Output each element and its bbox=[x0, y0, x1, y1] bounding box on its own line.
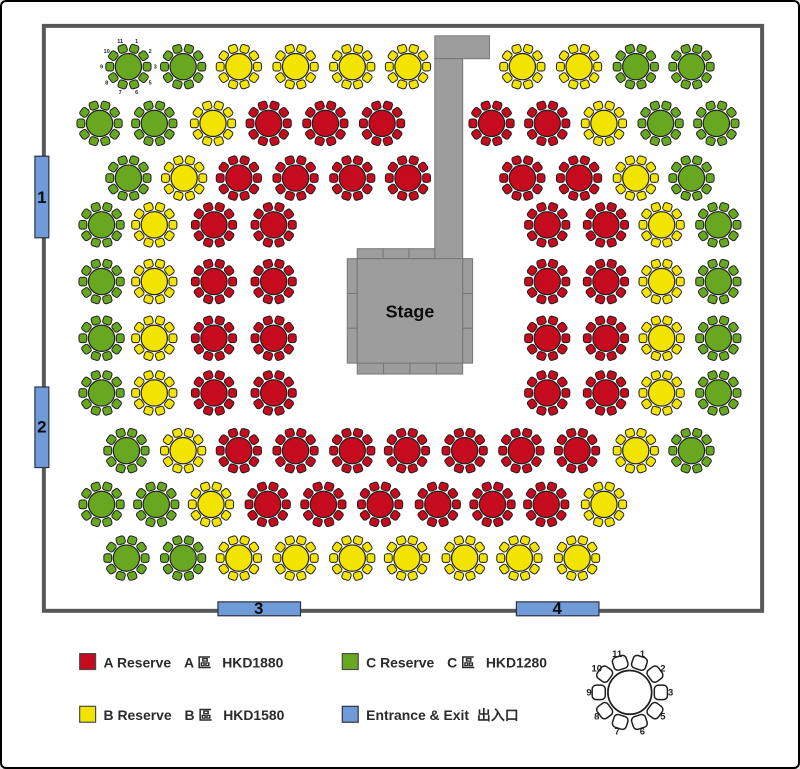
chair bbox=[203, 294, 214, 304]
chair bbox=[581, 500, 589, 509]
table-top bbox=[649, 380, 675, 406]
chair bbox=[625, 79, 636, 89]
chair bbox=[500, 174, 508, 183]
chair bbox=[523, 191, 534, 201]
chair bbox=[301, 500, 309, 509]
chair bbox=[115, 535, 126, 545]
chair bbox=[396, 463, 407, 473]
stage-runway bbox=[435, 36, 490, 260]
table-zone-a bbox=[191, 202, 236, 248]
chair bbox=[102, 406, 113, 416]
table-zone-b bbox=[384, 535, 429, 581]
table-zone-b bbox=[639, 315, 684, 361]
chair bbox=[696, 221, 704, 230]
chair bbox=[493, 482, 504, 492]
table-zone-b bbox=[639, 259, 684, 305]
table-zone-a bbox=[415, 482, 460, 528]
chair bbox=[143, 370, 154, 380]
chair bbox=[129, 191, 140, 201]
table-top bbox=[141, 212, 167, 238]
chair bbox=[239, 155, 250, 165]
chair bbox=[719, 370, 730, 380]
table-top bbox=[593, 325, 619, 351]
chair bbox=[353, 44, 364, 54]
chair bbox=[371, 136, 382, 146]
seat-number: 5 bbox=[660, 712, 665, 723]
chair bbox=[184, 428, 195, 438]
chair bbox=[314, 136, 325, 146]
chair bbox=[407, 428, 418, 438]
chair bbox=[523, 44, 534, 54]
chair bbox=[310, 446, 318, 455]
chair bbox=[214, 351, 225, 361]
chair bbox=[510, 463, 521, 473]
chair bbox=[562, 334, 570, 343]
chair bbox=[268, 482, 279, 492]
chair bbox=[273, 62, 281, 71]
chair bbox=[338, 500, 346, 509]
table-zone-b bbox=[162, 155, 207, 201]
table-zone-c bbox=[161, 44, 206, 90]
table-top bbox=[88, 491, 114, 517]
table-zone-a bbox=[358, 482, 403, 528]
chair bbox=[595, 315, 606, 325]
floor-plan-canvas: Stage 123567891011 1 2 3 4 A ReserveA 區H… bbox=[2, 2, 798, 767]
table-top bbox=[282, 438, 308, 464]
chair bbox=[216, 174, 224, 183]
chair bbox=[190, 119, 198, 128]
chair bbox=[127, 463, 138, 473]
chair bbox=[155, 351, 166, 361]
chair bbox=[341, 79, 352, 89]
chair bbox=[353, 535, 364, 545]
table-zone-a bbox=[301, 482, 346, 528]
chair bbox=[228, 535, 239, 545]
stage-step bbox=[357, 363, 383, 374]
chair bbox=[454, 571, 465, 581]
table-top bbox=[623, 165, 649, 191]
chair bbox=[263, 202, 274, 212]
chair bbox=[312, 482, 323, 492]
chair bbox=[650, 62, 658, 71]
chair bbox=[523, 79, 534, 89]
table-top bbox=[170, 54, 196, 80]
table-top bbox=[282, 165, 308, 191]
chair bbox=[595, 351, 606, 361]
chair bbox=[228, 428, 239, 438]
chair bbox=[537, 62, 545, 71]
chair bbox=[326, 136, 337, 146]
chair bbox=[650, 136, 661, 146]
chair bbox=[129, 44, 140, 54]
chair bbox=[593, 136, 604, 146]
legend-label-b: B ReserveB 區HKD1580 bbox=[104, 707, 285, 723]
chair bbox=[506, 119, 514, 128]
chair bbox=[534, 554, 542, 563]
chair bbox=[173, 191, 184, 201]
chair bbox=[288, 221, 296, 230]
legend-c-name: C Reserve bbox=[366, 655, 434, 671]
legend-a-zone: A 區 bbox=[184, 655, 211, 671]
chair bbox=[422, 446, 430, 455]
table-top bbox=[312, 110, 338, 136]
table-zone-c bbox=[79, 315, 124, 361]
chair bbox=[604, 136, 615, 146]
chair bbox=[172, 463, 183, 473]
chair bbox=[143, 351, 154, 361]
chair bbox=[384, 446, 392, 455]
table-top bbox=[143, 491, 169, 517]
chair bbox=[115, 571, 126, 581]
chair bbox=[535, 517, 546, 527]
chair bbox=[593, 482, 604, 492]
chair bbox=[680, 155, 691, 165]
chair bbox=[694, 119, 702, 128]
chair bbox=[188, 500, 196, 509]
chair bbox=[353, 79, 364, 89]
table-top bbox=[141, 380, 167, 406]
seat-number: 11 bbox=[612, 649, 622, 660]
chair bbox=[548, 237, 559, 247]
table-top bbox=[478, 110, 504, 136]
chair bbox=[296, 535, 307, 545]
chair bbox=[100, 136, 111, 146]
chair bbox=[497, 554, 505, 563]
chair bbox=[145, 517, 156, 527]
chair bbox=[143, 237, 154, 247]
chair bbox=[717, 136, 728, 146]
chair bbox=[625, 44, 636, 54]
chair bbox=[155, 101, 166, 111]
chair bbox=[353, 155, 364, 165]
chair bbox=[525, 119, 533, 128]
chair bbox=[169, 277, 177, 286]
chair bbox=[263, 259, 274, 269]
table-top bbox=[200, 110, 226, 136]
chair bbox=[274, 406, 285, 416]
chair bbox=[239, 571, 250, 581]
table-top bbox=[255, 491, 281, 517]
chair bbox=[522, 428, 533, 438]
table-zone-a bbox=[583, 202, 628, 248]
chair bbox=[719, 406, 730, 416]
chair bbox=[579, 44, 590, 54]
chair bbox=[129, 155, 140, 165]
chair bbox=[228, 79, 239, 89]
table-zone-b bbox=[132, 370, 177, 416]
chair bbox=[172, 535, 183, 545]
chair bbox=[548, 101, 559, 111]
chair bbox=[104, 446, 112, 455]
chair bbox=[396, 571, 407, 581]
table-zone-a bbox=[499, 428, 544, 474]
chair bbox=[90, 294, 101, 304]
chair bbox=[536, 259, 547, 269]
chair bbox=[556, 62, 564, 71]
chair bbox=[172, 79, 183, 89]
chair bbox=[228, 119, 236, 128]
table-zone-a bbox=[251, 202, 296, 248]
chair bbox=[669, 446, 677, 455]
table-zone-c bbox=[134, 482, 179, 528]
chair bbox=[480, 136, 491, 146]
chair bbox=[143, 315, 154, 325]
chair bbox=[581, 119, 589, 128]
chair bbox=[662, 294, 673, 304]
chair bbox=[692, 44, 703, 54]
legend-label-a: A ReserveA 區HKD1880 bbox=[104, 655, 284, 671]
table-zone-a bbox=[360, 101, 405, 147]
chair bbox=[662, 259, 673, 269]
chair bbox=[330, 174, 338, 183]
chair bbox=[284, 79, 295, 89]
table-top bbox=[201, 268, 227, 294]
chair bbox=[185, 191, 196, 201]
chair bbox=[508, 535, 519, 545]
chair bbox=[127, 571, 138, 581]
chair bbox=[360, 119, 368, 128]
chair bbox=[203, 351, 214, 361]
chair bbox=[169, 221, 177, 230]
chair bbox=[654, 685, 667, 699]
chair bbox=[733, 334, 741, 343]
chair bbox=[263, 294, 274, 304]
table-top bbox=[534, 110, 560, 136]
chair bbox=[604, 482, 615, 492]
chair bbox=[169, 119, 177, 128]
chair bbox=[454, 463, 465, 473]
chair bbox=[274, 202, 285, 212]
chair bbox=[155, 370, 166, 380]
stage-step bbox=[347, 328, 357, 363]
chair bbox=[282, 500, 290, 509]
chair bbox=[172, 44, 183, 54]
chair bbox=[102, 351, 113, 361]
table-top bbox=[395, 54, 421, 80]
table-top bbox=[201, 212, 227, 238]
chair bbox=[397, 44, 408, 54]
chair bbox=[636, 191, 647, 201]
chair bbox=[548, 202, 559, 212]
chair bbox=[606, 294, 617, 304]
chair bbox=[102, 482, 113, 492]
chair bbox=[493, 517, 504, 527]
table-top bbox=[115, 54, 141, 80]
chair bbox=[254, 62, 262, 71]
table-zone-b bbox=[613, 428, 658, 474]
chair bbox=[341, 191, 352, 201]
chair bbox=[636, 428, 647, 438]
chair bbox=[141, 554, 149, 563]
table-zone-b bbox=[330, 535, 375, 581]
table-top bbox=[198, 491, 224, 517]
chair bbox=[283, 119, 291, 128]
chair bbox=[427, 517, 438, 527]
chair bbox=[203, 259, 214, 269]
chair bbox=[203, 202, 214, 212]
chair bbox=[161, 62, 169, 71]
table-top bbox=[394, 545, 420, 571]
chair bbox=[454, 535, 465, 545]
chair bbox=[102, 315, 113, 325]
table-zone-c bbox=[132, 101, 177, 147]
table-top bbox=[201, 380, 227, 406]
chair bbox=[692, 79, 703, 89]
chair bbox=[613, 446, 621, 455]
chair bbox=[492, 101, 503, 111]
seat-number: 2 bbox=[660, 664, 665, 675]
chair bbox=[143, 136, 154, 146]
chair bbox=[396, 428, 407, 438]
table-top bbox=[88, 268, 114, 294]
chair bbox=[251, 221, 259, 230]
chair bbox=[117, 79, 128, 89]
chair bbox=[104, 554, 112, 563]
chair bbox=[184, 463, 195, 473]
table-zone-a bbox=[191, 315, 236, 361]
chair bbox=[407, 463, 418, 473]
chair bbox=[595, 406, 606, 416]
chair bbox=[143, 259, 154, 269]
chair bbox=[651, 351, 662, 361]
chair bbox=[636, 155, 647, 165]
chair bbox=[284, 571, 295, 581]
chair bbox=[385, 62, 393, 71]
chair bbox=[465, 463, 476, 473]
chair bbox=[145, 482, 156, 492]
chair bbox=[547, 517, 558, 527]
chair bbox=[536, 101, 547, 111]
seat-number: 7 bbox=[615, 726, 620, 737]
chair bbox=[548, 259, 559, 269]
chair bbox=[511, 79, 522, 89]
stage-step bbox=[347, 259, 357, 294]
chair bbox=[397, 79, 408, 89]
table-top bbox=[564, 545, 590, 571]
chair bbox=[669, 174, 677, 183]
chair bbox=[202, 101, 213, 111]
chair bbox=[465, 535, 476, 545]
chair bbox=[438, 517, 449, 527]
table-top bbox=[703, 110, 729, 136]
table-top bbox=[509, 54, 535, 80]
table-top bbox=[282, 545, 308, 571]
chair bbox=[228, 191, 239, 201]
chair bbox=[288, 277, 296, 286]
chair bbox=[132, 221, 140, 230]
chair bbox=[303, 119, 311, 128]
chair bbox=[116, 221, 124, 230]
chair bbox=[367, 446, 375, 455]
chair bbox=[625, 191, 636, 201]
stage-step bbox=[383, 249, 409, 259]
table-zone-a bbox=[442, 428, 487, 474]
chair bbox=[625, 155, 636, 165]
chair bbox=[155, 237, 166, 247]
table-zone-b bbox=[556, 44, 601, 90]
chair bbox=[239, 463, 250, 473]
chair bbox=[269, 101, 280, 111]
stage-step bbox=[463, 328, 473, 363]
chair bbox=[592, 685, 605, 699]
chair bbox=[155, 406, 166, 416]
chair bbox=[669, 62, 677, 71]
chair bbox=[102, 237, 113, 247]
chair bbox=[499, 446, 507, 455]
chair bbox=[595, 370, 606, 380]
chair bbox=[554, 554, 562, 563]
chair bbox=[639, 221, 647, 230]
chair bbox=[453, 500, 461, 509]
table-zone-a bbox=[556, 155, 601, 201]
chair bbox=[706, 62, 714, 71]
chair bbox=[566, 535, 577, 545]
chair bbox=[173, 155, 184, 165]
seat-number: 10 bbox=[592, 664, 603, 675]
chair bbox=[594, 62, 602, 71]
chair bbox=[310, 62, 318, 71]
chair bbox=[407, 571, 418, 581]
chair bbox=[692, 155, 703, 165]
chair bbox=[606, 202, 617, 212]
chair bbox=[625, 428, 636, 438]
chair bbox=[525, 221, 533, 230]
table-zone-c bbox=[79, 482, 124, 528]
table-zone-b bbox=[216, 535, 261, 581]
stage-step bbox=[409, 249, 435, 259]
table-zone-b bbox=[216, 44, 261, 90]
chair bbox=[77, 119, 85, 128]
table-top bbox=[141, 268, 167, 294]
table-top bbox=[593, 212, 619, 238]
chair bbox=[198, 554, 206, 563]
chair bbox=[284, 463, 295, 473]
chair bbox=[367, 62, 375, 71]
chair bbox=[274, 259, 285, 269]
table-zone-c bbox=[79, 202, 124, 248]
table-zone-b bbox=[581, 101, 626, 147]
entrance-3: 3 bbox=[218, 599, 301, 618]
chair bbox=[579, 155, 590, 165]
chair bbox=[583, 334, 591, 343]
table-top bbox=[623, 54, 649, 80]
chair bbox=[706, 446, 714, 455]
table-top bbox=[261, 212, 287, 238]
chair bbox=[273, 174, 281, 183]
chair bbox=[562, 389, 570, 398]
chair bbox=[341, 571, 352, 581]
table-top bbox=[261, 380, 287, 406]
chair bbox=[415, 500, 423, 509]
chair bbox=[288, 334, 296, 343]
table-top bbox=[705, 380, 731, 406]
entrance-number: 3 bbox=[254, 599, 263, 618]
table-top bbox=[171, 165, 197, 191]
table-zone-a bbox=[525, 315, 570, 361]
chair bbox=[595, 294, 606, 304]
table-zone-a bbox=[303, 101, 348, 147]
chair bbox=[717, 101, 728, 111]
chair bbox=[583, 389, 591, 398]
table-zone-a bbox=[191, 370, 236, 416]
chair bbox=[214, 202, 225, 212]
chair bbox=[577, 535, 588, 545]
chair bbox=[116, 500, 124, 509]
chair bbox=[88, 136, 99, 146]
chair bbox=[79, 221, 87, 230]
chair bbox=[284, 191, 295, 201]
chair bbox=[102, 202, 113, 212]
